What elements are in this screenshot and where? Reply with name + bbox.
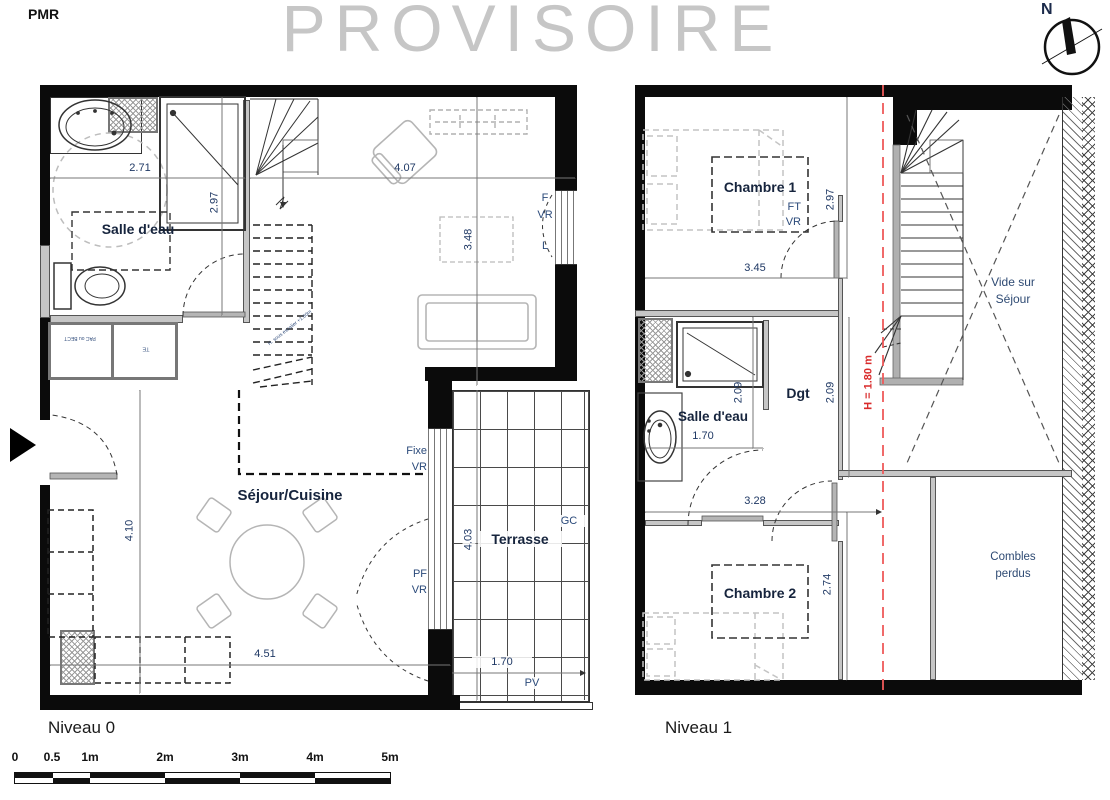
dim-bath-width: 2.71 bbox=[110, 162, 170, 174]
closet-label-te: TE bbox=[130, 345, 162, 352]
bedroom2-door bbox=[772, 481, 837, 541]
room-label-living: Séjour/Cuisine bbox=[215, 487, 365, 504]
scale-tick-3m: 3m bbox=[226, 750, 254, 764]
tag-gc: GC bbox=[552, 515, 586, 527]
room-label-bath: Salle d'eau bbox=[78, 221, 198, 237]
void-label-line2: Séjour bbox=[973, 292, 1053, 306]
attic-label-line2: perdus bbox=[973, 568, 1053, 580]
dimension-lines bbox=[50, 97, 585, 700]
void-label-line1: Vide sur bbox=[973, 275, 1053, 289]
closet-label-pac: PAC ou BECT bbox=[57, 335, 103, 341]
tag-vr: VR bbox=[761, 216, 801, 228]
dim-bath-width: 1.70 bbox=[673, 430, 733, 442]
door-tag-pf-vr: VR bbox=[385, 584, 427, 596]
bedroom2-zone bbox=[712, 565, 808, 638]
dim-living-depth: 3.48 bbox=[463, 218, 476, 262]
entrance-door-swing bbox=[50, 415, 117, 479]
level0-title: Niveau 0 bbox=[48, 718, 115, 738]
window-tag-vr: VR bbox=[532, 209, 558, 221]
pmr-label: PMR bbox=[28, 6, 59, 22]
shower bbox=[677, 322, 763, 387]
bed bbox=[643, 613, 783, 680]
dim-terrace-height: 4.03 bbox=[463, 518, 476, 562]
bedroom1-door bbox=[781, 221, 839, 278]
north-needle bbox=[1062, 17, 1076, 55]
dim-corridor-width: 3.28 bbox=[725, 495, 785, 507]
scale-tick-5m: 5m bbox=[376, 750, 404, 764]
room-label-bath: Salle d'eau bbox=[663, 409, 763, 424]
window-tag-fixe: Fixe bbox=[385, 445, 427, 457]
level0-plan: Salle d'eau Séjour/Cuisine Terrasse 2.71… bbox=[40, 85, 592, 713]
dim-hallway-height: 2.09 bbox=[825, 371, 838, 415]
room-label-bedroom1: Chambre 1 bbox=[712, 179, 808, 195]
room-label-bedroom2: Chambre 2 bbox=[712, 585, 808, 601]
stairs-upper-dashed bbox=[253, 225, 312, 387]
window-tag-fixe-vr: VR bbox=[385, 461, 427, 473]
bath-door bbox=[688, 450, 763, 525]
dim-bedroom1-height: 2.97 bbox=[825, 178, 838, 222]
stairs bbox=[875, 110, 963, 385]
dim-bedroom2-height: 2.74 bbox=[822, 563, 835, 607]
dim-bedroom1-width: 3.45 bbox=[725, 262, 785, 274]
dim-bath-height: 2.09 bbox=[733, 371, 746, 415]
scale-tick-4m: 4m bbox=[301, 750, 329, 764]
window-tag-f: F bbox=[532, 192, 558, 204]
door-tag-pf: PF bbox=[385, 568, 427, 580]
entrance-arrow-icon bbox=[10, 428, 36, 462]
level0-linework bbox=[40, 85, 592, 713]
bath-door-swing bbox=[183, 254, 245, 317]
scale-tick-0: 0 bbox=[1, 750, 29, 764]
level1-title: Niveau 1 bbox=[665, 718, 732, 738]
armchair bbox=[367, 118, 439, 190]
room-label-hallway: Dgt bbox=[768, 385, 828, 401]
window-tag-l: L bbox=[532, 240, 558, 252]
scale-tick-1m: 1m bbox=[76, 750, 104, 764]
dim-terrace-width: 1.70 bbox=[472, 656, 532, 668]
scale-tick-05: 0.5 bbox=[38, 750, 66, 764]
tag-pv: PV bbox=[515, 677, 549, 689]
dim-living-width: 4.07 bbox=[375, 162, 435, 174]
dim-bath-height: 2.97 bbox=[209, 181, 222, 225]
dim-living-width2: 4.51 bbox=[235, 648, 295, 660]
shower bbox=[160, 97, 245, 230]
tag-ft: FT bbox=[761, 201, 801, 213]
scale-tick-2m: 2m bbox=[151, 750, 179, 764]
sink bbox=[59, 100, 131, 150]
dining-table bbox=[196, 497, 338, 629]
attic-label-line1: Combles bbox=[973, 551, 1053, 563]
tv-cabinet bbox=[430, 110, 527, 134]
level1-plan: Chambre 1 FT VR Salle d'eau Dgt Chambre … bbox=[635, 85, 1100, 713]
compass-icon bbox=[1032, 0, 1110, 85]
provisoire-watermark: PROVISOIRE bbox=[212, 0, 852, 66]
stairs bbox=[250, 99, 318, 209]
dim-living-height: 4.10 bbox=[124, 509, 137, 553]
scale-bar-strip bbox=[14, 772, 391, 784]
floor-plan-sheet: PMR PROVISOIRE N bbox=[0, 0, 1110, 800]
height-note: H = 1.80 m bbox=[863, 343, 876, 423]
room-label-terrace: Terrasse bbox=[478, 531, 562, 547]
door-swing bbox=[357, 605, 428, 681]
scale-bar: 0 0.5 1m 2m 3m 4m 5m bbox=[14, 750, 394, 790]
kitchen-counter bbox=[48, 510, 230, 683]
